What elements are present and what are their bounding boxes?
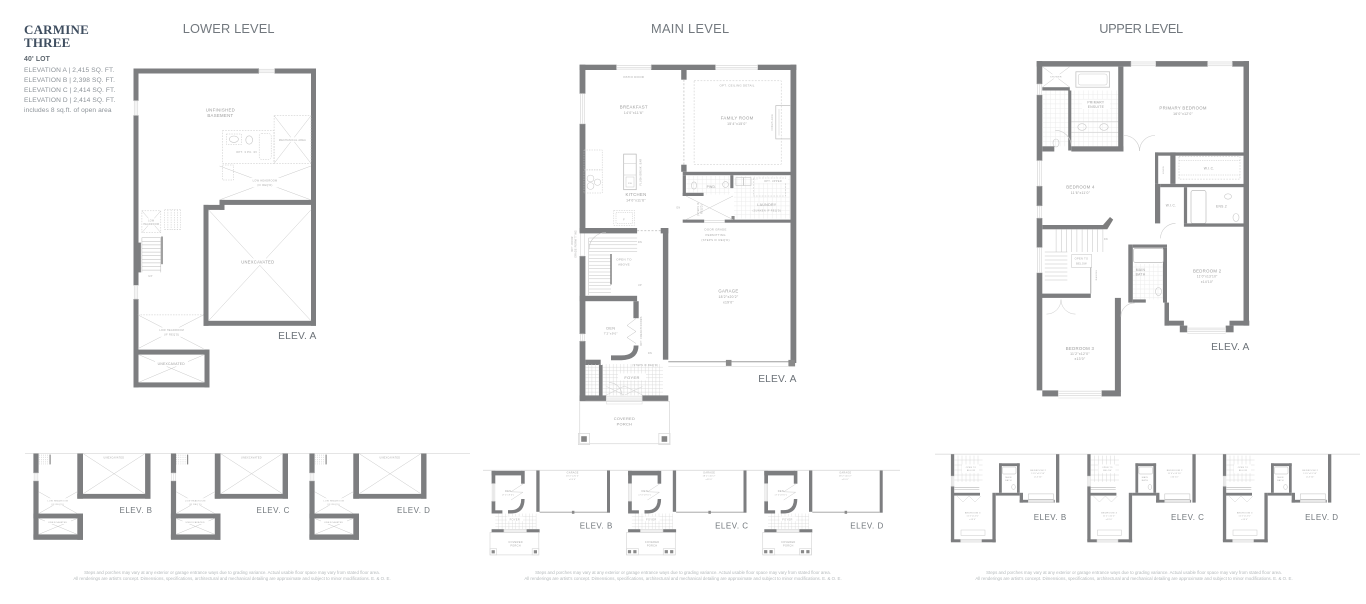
- svg-text:LOW HEADROOM: LOW HEADROOM: [253, 180, 278, 183]
- svg-text:OPT. UPPER: OPT. UPPER: [764, 180, 782, 183]
- svg-text:LAUNDRY: LAUNDRY: [757, 203, 777, 207]
- svg-text:ELEV. C: ELEV. C: [257, 506, 290, 515]
- svg-text:ELEV. D: ELEV. D: [1305, 513, 1338, 522]
- svg-text:18'2"x20'2": 18'2"x20'2": [839, 476, 852, 478]
- svg-text:GRADE PERMITTING: GRADE PERMITTING: [575, 230, 578, 258]
- svg-text:14'0"x11'6": 14'0"x11'6": [624, 111, 644, 115]
- svg-text:BEDROOM 3: BEDROOM 3: [1101, 512, 1117, 514]
- svg-text:(IF REQ'D): (IF REQ'D): [257, 184, 272, 187]
- svg-text:PRIMARY: PRIMARY: [1087, 100, 1105, 104]
- svg-text:UNEXCAVATED: UNEXCAVATED: [48, 521, 67, 524]
- svg-text:16'0"x12'0": 16'0"x12'0": [1173, 112, 1194, 116]
- svg-text:x14'10": x14'10": [1171, 476, 1179, 478]
- svg-text:OPT. FRENCH DOORS: OPT. FRENCH DOORS: [641, 316, 643, 346]
- svg-text:MAIN: MAIN: [1277, 476, 1283, 479]
- svg-text:UNEXCAVATED: UNEXCAVATED: [380, 457, 401, 460]
- svg-text:18'2"x20'2": 18'2"x20'2": [703, 476, 716, 478]
- svg-text:GARAGE: GARAGE: [839, 472, 851, 475]
- svg-text:FOYER: FOYER: [646, 517, 656, 521]
- svg-text:UNEXCAVATED: UNEXCAVATED: [158, 362, 186, 366]
- svg-text:11'2"x12'0": 11'2"x12'0": [1239, 516, 1252, 518]
- svg-text:ELEV. D: ELEV. D: [397, 506, 430, 515]
- svg-text:PWD.: PWD.: [707, 185, 717, 189]
- svg-text:MAIN: MAIN: [1142, 476, 1148, 479]
- svg-text:x14'10": x14'10": [1034, 476, 1042, 478]
- svg-text:F: F: [623, 218, 625, 222]
- svg-text:14'0"x11'6": 14'0"x11'6": [626, 198, 646, 202]
- svg-text:OPEN TO: OPEN TO: [1075, 257, 1089, 261]
- svg-text:PORCH: PORCH: [647, 544, 658, 547]
- svg-text:x19'0": x19'0": [842, 479, 849, 481]
- svg-text:PATIO DOOR: PATIO DOOR: [623, 75, 644, 79]
- svg-text:(STEPS IF REQ'D): (STEPS IF REQ'D): [701, 238, 730, 242]
- svg-text:BELOW: BELOW: [1076, 262, 1087, 266]
- svg-text:LOW: LOW: [148, 221, 155, 223]
- svg-text:(STEPS IF: (STEPS IF: [698, 202, 700, 216]
- svg-text:11'6"x11'0": 11'6"x11'0": [1071, 191, 1091, 195]
- svg-text:PORCH: PORCH: [783, 544, 794, 547]
- svg-text:COVERED: COVERED: [614, 416, 635, 421]
- svg-text:ELEV. D: ELEV. D: [850, 522, 883, 531]
- svg-text:(SUNKEN IF REQ'D): (SUNKEN IF REQ'D): [753, 209, 782, 212]
- svg-text:RAILING: RAILING: [1095, 270, 1098, 280]
- svg-text:(IF REQ'D): (IF REQ'D): [327, 504, 340, 506]
- svg-text:ELEV. B: ELEV. B: [120, 506, 153, 515]
- svg-text:(7'2"x9'0"): (7'2"x9'0"): [639, 495, 651, 497]
- svg-text:BEDROOM 3: BEDROOM 3: [1066, 346, 1095, 351]
- svg-text:OPEN TO: OPEN TO: [616, 258, 632, 262]
- svg-text:7'2"x9'0": 7'2"x9'0": [604, 331, 618, 335]
- svg-text:LOW HEADROOM: LOW HEADROOM: [324, 500, 345, 503]
- svg-text:11'2"x12'0": 11'2"x12'0": [967, 516, 980, 518]
- svg-text:x13'0": x13'0": [1106, 519, 1113, 521]
- svg-text:BEDROOM 3: BEDROOM 3: [965, 512, 981, 514]
- svg-text:UP: UP: [148, 274, 152, 278]
- svg-text:OPEN TO: OPEN TO: [1238, 467, 1249, 469]
- svg-text:UNEXCAVATED: UNEXCAVATED: [186, 521, 205, 524]
- svg-text:KITCHEN: KITCHEN: [626, 192, 647, 197]
- svg-text:11'0"x13'10": 11'0"x13'10": [1197, 275, 1218, 279]
- svg-text:BEDROOM 3: BEDROOM 3: [1237, 512, 1253, 514]
- svg-text:ELEV. C: ELEV. C: [1171, 513, 1204, 522]
- svg-text:W.I.C.: W.I.C.: [1166, 204, 1176, 208]
- svg-text:LINEN: LINEN: [1163, 166, 1165, 174]
- svg-text:FOYER: FOYER: [782, 517, 792, 521]
- svg-text:FOYER: FOYER: [624, 375, 639, 380]
- svg-text:OPT. DOOR: OPT. DOOR: [572, 236, 574, 251]
- svg-text:x14'10": x14'10": [1201, 280, 1214, 284]
- svg-text:x19'0": x19'0": [706, 479, 713, 481]
- svg-text:(7'2"x9'0"): (7'2"x9'0"): [502, 495, 514, 497]
- svg-text:DEN: DEN: [778, 489, 784, 493]
- svg-text:PRIMARY BEDROOM: PRIMARY BEDROOM: [1159, 106, 1206, 111]
- svg-text:11'0"x13'10": 11'0"x13'10": [1303, 473, 1317, 475]
- svg-text:BEDROOM 2: BEDROOM 2: [1302, 470, 1318, 472]
- svg-text:BATH: BATH: [1142, 479, 1149, 482]
- svg-text:x13'0": x13'0": [1241, 519, 1248, 521]
- svg-text:15'4"x15'0": 15'4"x15'0": [727, 122, 748, 126]
- svg-text:DEN: DEN: [505, 489, 511, 493]
- svg-text:11'2"x12'0": 11'2"x12'0": [1070, 352, 1090, 356]
- svg-text:DOOR GRADE: DOOR GRADE: [705, 228, 727, 232]
- svg-text:OPT. CEILING DETAIL: OPT. CEILING DETAIL: [719, 84, 754, 88]
- svg-text:FIREPLACE: FIREPLACE: [771, 114, 774, 131]
- svg-text:PORCH: PORCH: [510, 544, 521, 547]
- svg-text:FOYER: FOYER: [510, 517, 520, 521]
- svg-text:OPEN TO: OPEN TO: [1102, 467, 1113, 469]
- svg-text:(IF REQ'D): (IF REQ'D): [51, 504, 64, 506]
- svg-text:MECHANICAL AREA: MECHANICAL AREA: [279, 139, 306, 142]
- svg-text:BEDROOM 4: BEDROOM 4: [1066, 185, 1095, 190]
- svg-text:BEDROOM 2: BEDROOM 2: [1167, 470, 1183, 472]
- svg-text:(7'2"x9'0"): (7'2"x9'0"): [775, 495, 787, 497]
- svg-text:ABOVE: ABOVE: [618, 263, 630, 267]
- svg-text:DEN: DEN: [642, 489, 648, 493]
- svg-text:FAMILY ROOM: FAMILY ROOM: [721, 116, 754, 121]
- svg-text:x19'0": x19'0": [723, 301, 734, 305]
- svg-text:BATH: BATH: [1277, 479, 1284, 482]
- svg-text:DN: DN: [677, 208, 681, 210]
- svg-text:x13'0": x13'0": [1074, 357, 1085, 361]
- svg-text:MAIN: MAIN: [1005, 476, 1011, 479]
- svg-text:BELOW: BELOW: [1239, 470, 1247, 472]
- svg-text:UNEXCAVATED: UNEXCAVATED: [241, 457, 262, 460]
- svg-text:GARAGE: GARAGE: [567, 472, 579, 475]
- svg-text:UNEXCAVATED: UNEXCAVATED: [324, 521, 343, 524]
- svg-text:UP: UP: [638, 284, 642, 287]
- svg-text:ELEV. B: ELEV. B: [580, 522, 613, 531]
- svg-text:REQ'D): REQ'D): [702, 204, 704, 214]
- svg-text:HEADROOM: HEADROOM: [143, 223, 159, 226]
- svg-text:LOW HEADROOM: LOW HEADROOM: [185, 500, 206, 503]
- svg-text:UNFINISHED: UNFINISHED: [206, 108, 235, 113]
- svg-text:11'0"x13'10": 11'0"x13'10": [1168, 473, 1182, 475]
- svg-text:GARAGE: GARAGE: [703, 472, 715, 475]
- svg-text:DW: DW: [628, 183, 633, 185]
- svg-text:PERMITTING: PERMITTING: [705, 233, 725, 237]
- svg-text:18'2"x20'2": 18'2"x20'2": [718, 295, 739, 299]
- svg-text:x19'0": x19'0": [569, 479, 576, 481]
- svg-text:x14'10": x14'10": [1306, 476, 1314, 478]
- svg-text:DEN: DEN: [606, 326, 615, 330]
- svg-text:BELOW: BELOW: [967, 470, 975, 472]
- svg-text:BEDROOM 2: BEDROOM 2: [1193, 268, 1222, 273]
- svg-text:x13'0": x13'0": [969, 519, 976, 521]
- svg-text:FLUSH BREAK. BAR: FLUSH BREAK. BAR: [640, 159, 643, 186]
- svg-text:GARAGE: GARAGE: [718, 289, 738, 294]
- svg-text:PORCH: PORCH: [617, 422, 633, 427]
- svg-text:BREAKFAST: BREAKFAST: [620, 105, 648, 110]
- svg-text:MAIN: MAIN: [1136, 268, 1146, 272]
- svg-text:OPEN TO: OPEN TO: [966, 467, 977, 469]
- svg-text:ENSUITE: ENSUITE: [1088, 105, 1105, 109]
- svg-text:(IF REQ'D): (IF REQ'D): [189, 504, 202, 506]
- svg-text:OPT. 3 PC. RI: OPT. 3 PC. RI: [236, 150, 257, 154]
- svg-text:DN: DN: [638, 241, 642, 244]
- svg-text:BELOW: BELOW: [1103, 470, 1111, 472]
- svg-text:ELEV. B: ELEV. B: [1034, 513, 1067, 522]
- svg-text:11'0"x13'10": 11'0"x13'10": [1031, 473, 1045, 475]
- svg-text:LOW HEADROOM: LOW HEADROOM: [48, 500, 69, 503]
- svg-text:18'2"x20'2": 18'2"x20'2": [566, 476, 579, 478]
- svg-text:11'2"x12'0": 11'2"x12'0": [1103, 516, 1116, 518]
- svg-text:LOW HEADROOM: LOW HEADROOM: [159, 329, 184, 332]
- svg-text:BASEMENT: BASEMENT: [207, 113, 233, 118]
- svg-text:SHOWER: SHOWER: [1050, 77, 1062, 79]
- svg-text:UNEXCAVATED: UNEXCAVATED: [104, 457, 125, 460]
- svg-text:DN: DN: [1104, 239, 1108, 241]
- svg-text:ENS.2: ENS.2: [1216, 205, 1227, 209]
- svg-text:ELEV. C: ELEV. C: [715, 522, 748, 531]
- svg-text:BATH: BATH: [1136, 273, 1146, 277]
- svg-text:(IF REQ'D): (IF REQ'D): [164, 333, 179, 336]
- svg-text:(STEPS IF REQ'D): (STEPS IF REQ'D): [632, 364, 658, 367]
- svg-text:DN: DN: [648, 352, 652, 355]
- svg-text:UNEXCAVATED: UNEXCAVATED: [241, 259, 274, 264]
- svg-text:BEDROOM 2: BEDROOM 2: [1030, 470, 1046, 472]
- svg-text:W.I.C.: W.I.C.: [1204, 167, 1215, 171]
- svg-text:BATH: BATH: [1005, 479, 1012, 482]
